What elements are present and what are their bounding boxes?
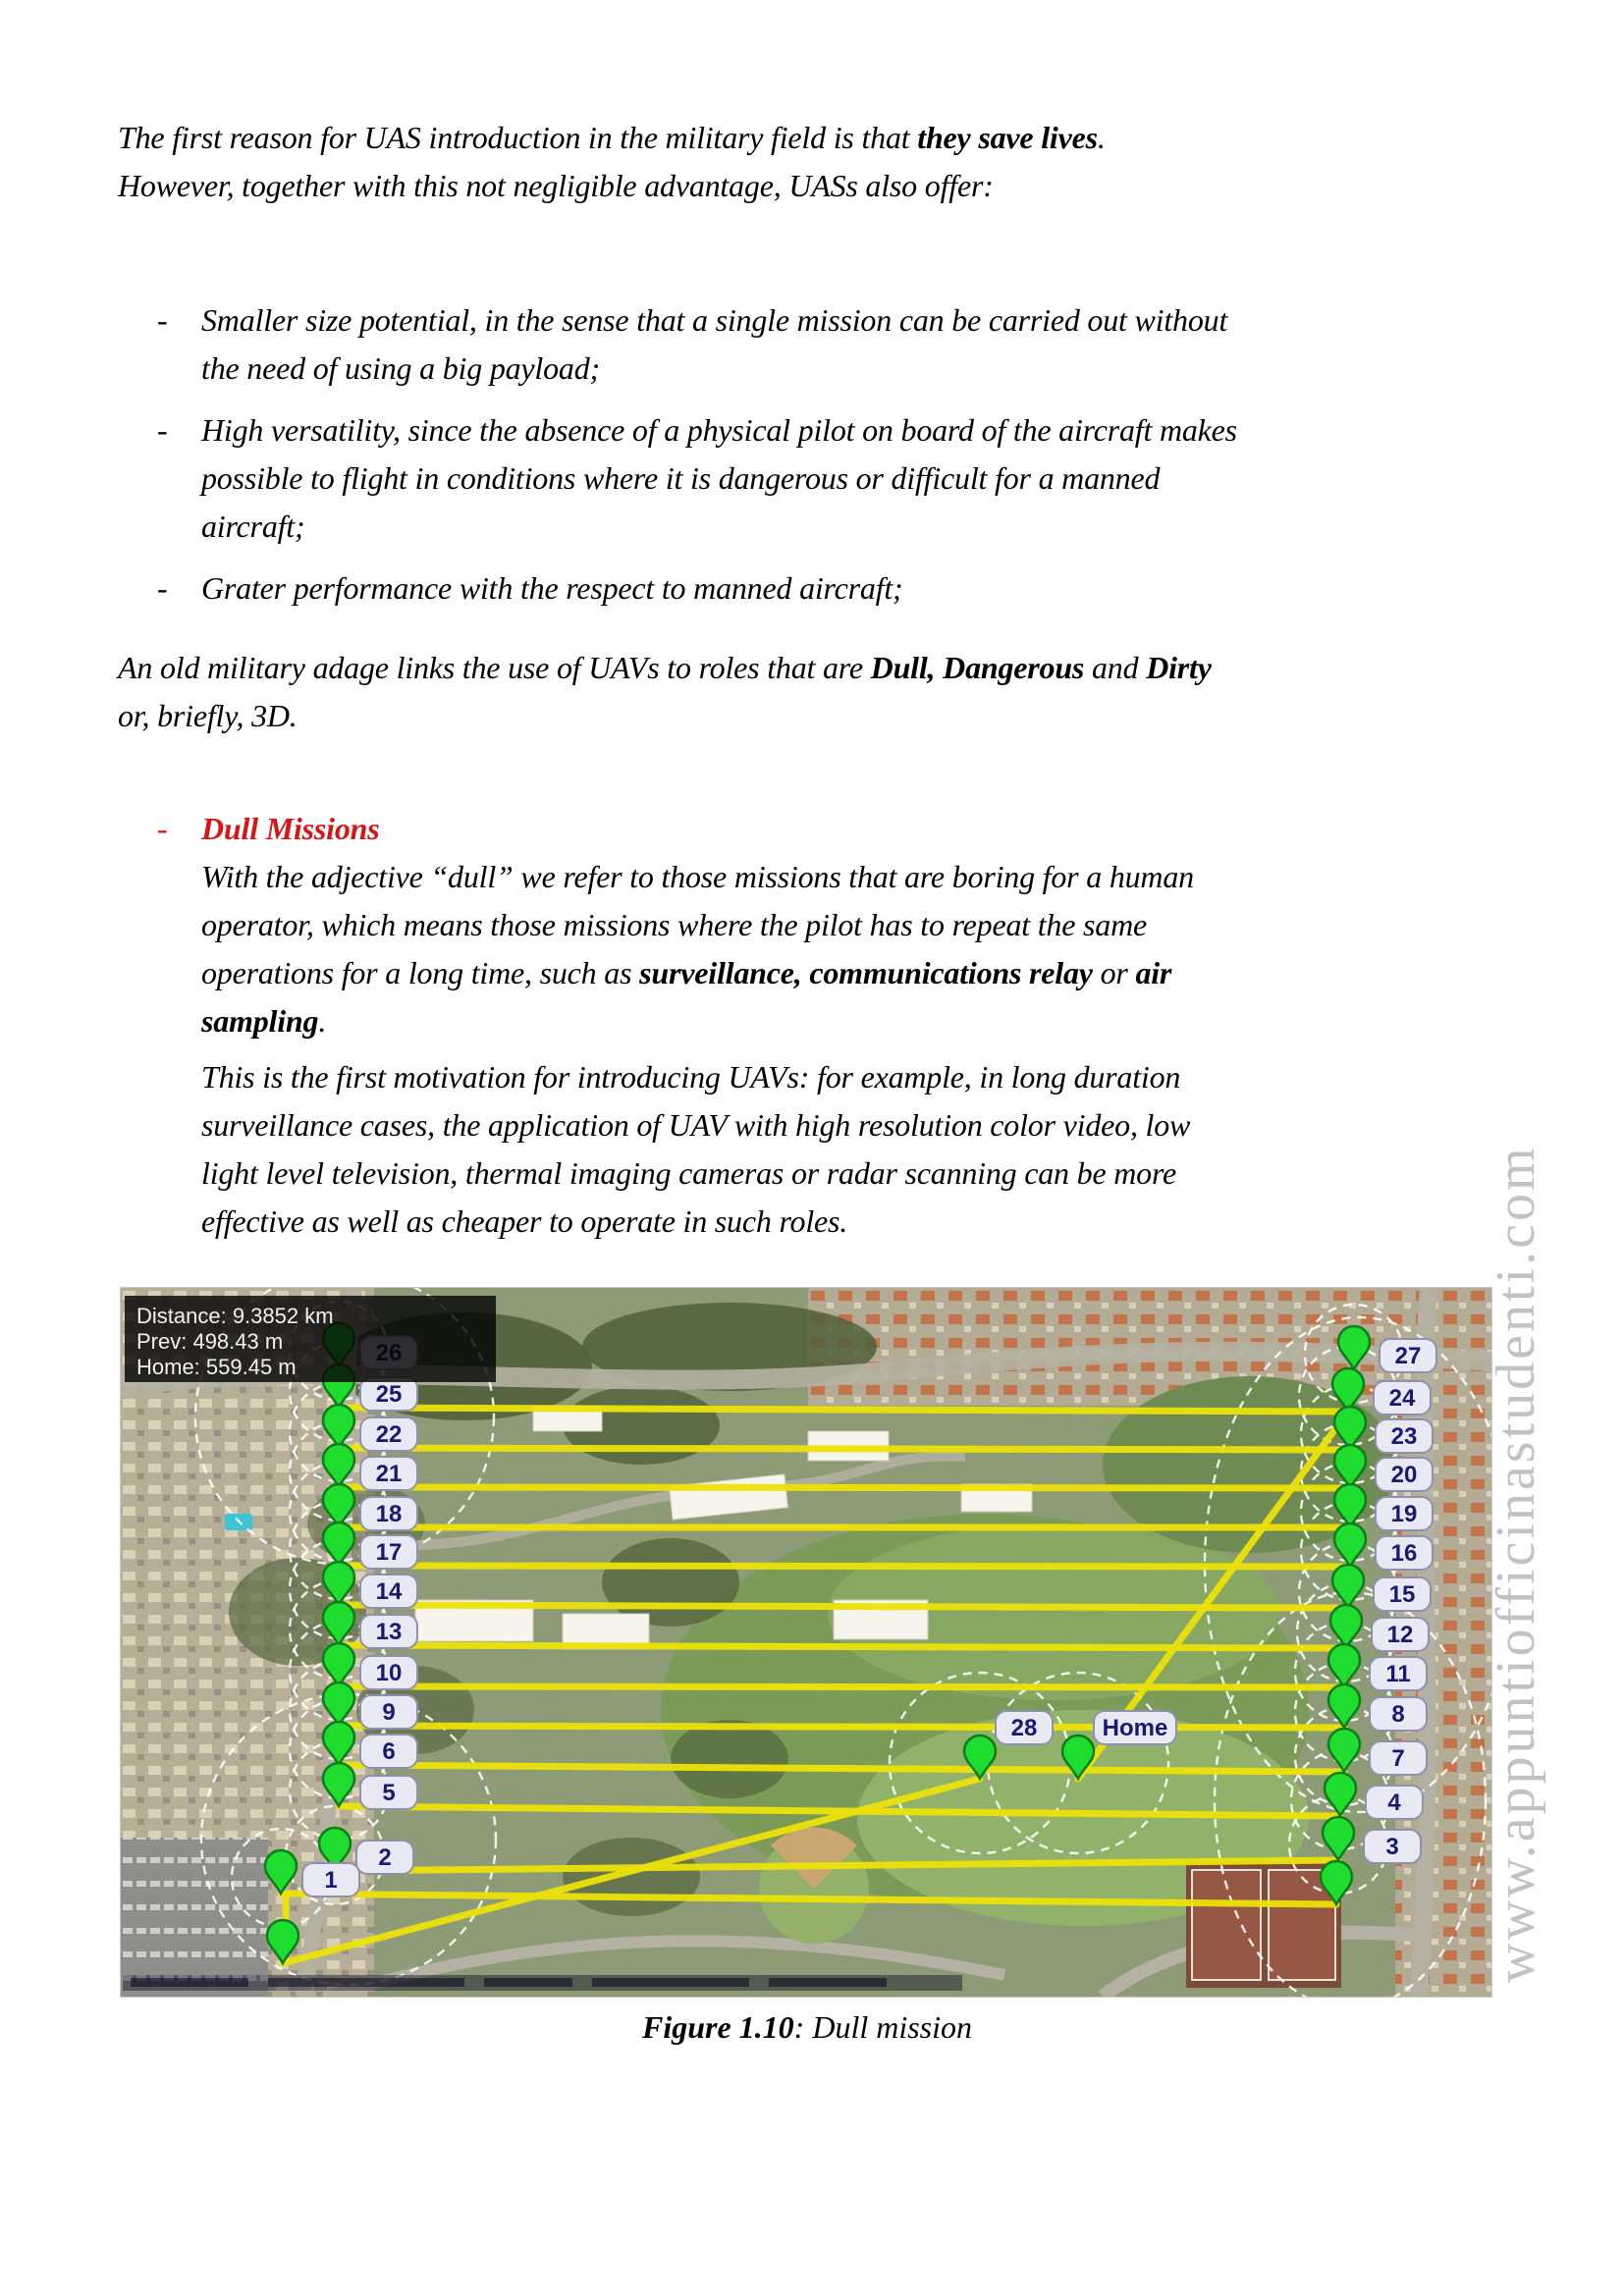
bullet-dash: - [157,564,201,613]
route-line [339,1487,1350,1488]
waypoint-label: 11 [1385,1661,1410,1687]
list-item: - High versatility, since the absence of… [157,406,1496,551]
waypoint-label: 4 [1387,1789,1401,1816]
waypoint-label: 25 [376,1381,403,1408]
waypoint-label: 10 [376,1660,403,1686]
route-line [339,1448,1350,1450]
waypoint-label: 9 [382,1699,395,1726]
text-run: aircraft; [201,508,304,544]
text-run: possible to flight in conditions where i… [201,460,1160,496]
text-run: With the adjective “dull” we refer to th… [201,859,1194,894]
text-run: . [1098,120,1106,155]
list-item: - Grater performance with the respect to… [157,564,1496,613]
route-line [339,1645,1346,1648]
bullet-dash: - [157,805,201,853]
text-run: or, briefly, 3D. [118,698,298,733]
route-line [339,1408,1348,1412]
waypoint-label: 16 [1391,1540,1418,1567]
waypoint-label: 21 [376,1461,403,1487]
text-run: Grater performance with the respect to m… [201,570,903,606]
baseball-field [759,1828,869,1944]
waypoint-label: 2 [378,1844,391,1871]
text-run: Smaller size potential, in the sense tha… [201,302,1227,338]
text-run: they save lives [917,120,1098,155]
dull-paragraph-1: With the adjective “dull” we refer to th… [201,853,1496,1045]
map-attribution-strip [123,1975,962,1991]
page-content: The first reason for UAS introduction in… [118,114,1496,2077]
bullet-dash: - [157,296,201,393]
text-run: surveillance, communications relay [639,955,1093,990]
text-run: . [318,1003,326,1039]
waypoint-label: 19 [1391,1501,1418,1527]
text-run: Figure 1.10 [642,2009,794,2045]
text-run: Dirty [1146,650,1212,685]
route-line [339,1566,1350,1567]
telemetry-info-box: Distance: 9.3852 kmPrev: 498.43 mHome: 5… [125,1296,496,1382]
dull-mission-map: 2625222118171413109652127242320191615121… [120,1287,1492,1998]
text-run: and [1084,650,1146,685]
list-item-text: Grater performance with the respect to m… [201,564,1496,613]
text-run: air [1135,955,1171,990]
text-run: light level television, thermal imaging … [201,1155,1176,1191]
text-run: This is the first motivation for introdu… [201,1059,1180,1095]
waypoint-label: 14 [376,1578,403,1605]
waypoint-label: 5 [382,1780,395,1806]
text-run: or [1093,955,1136,990]
route-line [339,1686,1344,1687]
section-heading: Dull Missions [201,805,379,853]
figure-caption: Figure 1.10: Dull mission [118,2009,1496,2046]
waypoint-label: Home [1103,1715,1168,1741]
document-page: The first reason for UAS introduction in… [0,0,1624,2296]
route-line [339,1726,1344,1728]
waypoint-label: 28 [1011,1715,1038,1741]
waypoint-label: 18 [376,1501,403,1527]
waypoint-label: 7 [1391,1745,1404,1772]
adage-paragraph: An old military adage links the use of U… [118,644,1496,740]
waypoint-label: 23 [1391,1423,1418,1450]
list-item: - Smaller size potential, in the sense t… [157,296,1496,393]
waypoint-label: 3 [1385,1834,1398,1860]
telemetry-line: Home: 559.45 m [136,1355,297,1379]
text-run: operator, which means those missions whe… [201,907,1147,942]
dull-missions-heading-row: - Dull Missions [157,805,1496,853]
route-line [339,1605,1348,1608]
dull-paragraph-2: This is the first motivation for introdu… [201,1053,1496,1246]
text-run: However, together with this not negligib… [118,168,994,203]
text-run: The first reason for UAS introduction in… [118,120,917,155]
telemetry-line: Prev: 498.43 m [136,1329,283,1354]
intro-paragraph: The first reason for UAS introduction in… [118,114,1496,210]
watermark: www.appuntiofficinastudenti.com [1485,1145,1547,1983]
waypoint-label: 27 [1395,1343,1422,1369]
text-run: High versatility, since the absence of a… [201,412,1237,448]
text-run: : Dull mission [794,2009,972,2045]
bullet-dash: - [157,406,201,551]
waypoint-label: 1 [324,1867,337,1894]
text-run: effective as well as cheaper to operate … [201,1203,847,1239]
text-run: the need of using a big payload; [201,350,600,386]
text-run: An old military adage links the use of U… [118,650,871,685]
list-item-text: High versatility, since the absence of a… [201,406,1496,551]
text-run: surveillance cases, the application of U… [201,1107,1190,1143]
text-run: operations for a long time, such as [201,955,639,990]
text-run: sampling [201,1003,318,1039]
waypoint-label: 15 [1389,1581,1416,1608]
waypoint-label: 24 [1389,1385,1416,1412]
telemetry-line: Distance: 9.3852 km [136,1304,334,1328]
tennis-courts [1186,1862,1341,1988]
waypoint-label: 17 [376,1539,403,1566]
advantages-list: - Smaller size potential, in the sense t… [118,296,1496,613]
parking-lot [121,1838,268,1997]
waypoint-label: 12 [1387,1622,1414,1648]
waypoint-label: 13 [376,1619,403,1645]
waypoint-label: 6 [382,1738,395,1765]
waypoint-label: 22 [376,1421,403,1448]
satellite-map-figure: 2625222118171413109652127242320191615121… [120,1287,1490,1996]
text-run: Dull, Dangerous [871,650,1085,685]
waypoint-label: 8 [1391,1701,1404,1728]
list-item-text: Smaller size potential, in the sense tha… [201,296,1496,393]
waypoint-label: 20 [1391,1462,1418,1488]
